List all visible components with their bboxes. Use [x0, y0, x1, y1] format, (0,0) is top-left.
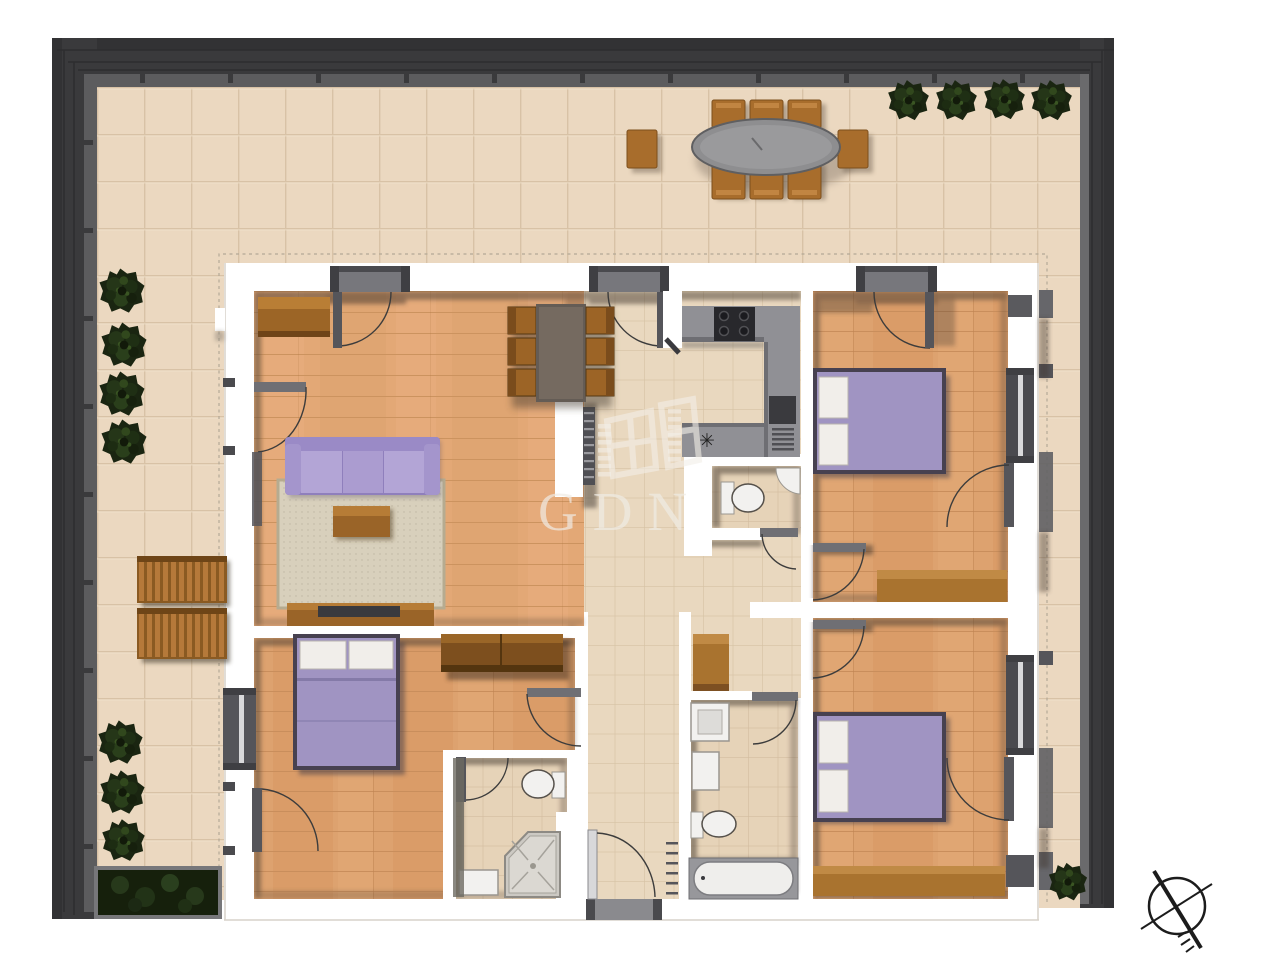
svg-text:✳: ✳	[699, 431, 715, 452]
svg-text:GDN: GDN	[538, 481, 702, 542]
